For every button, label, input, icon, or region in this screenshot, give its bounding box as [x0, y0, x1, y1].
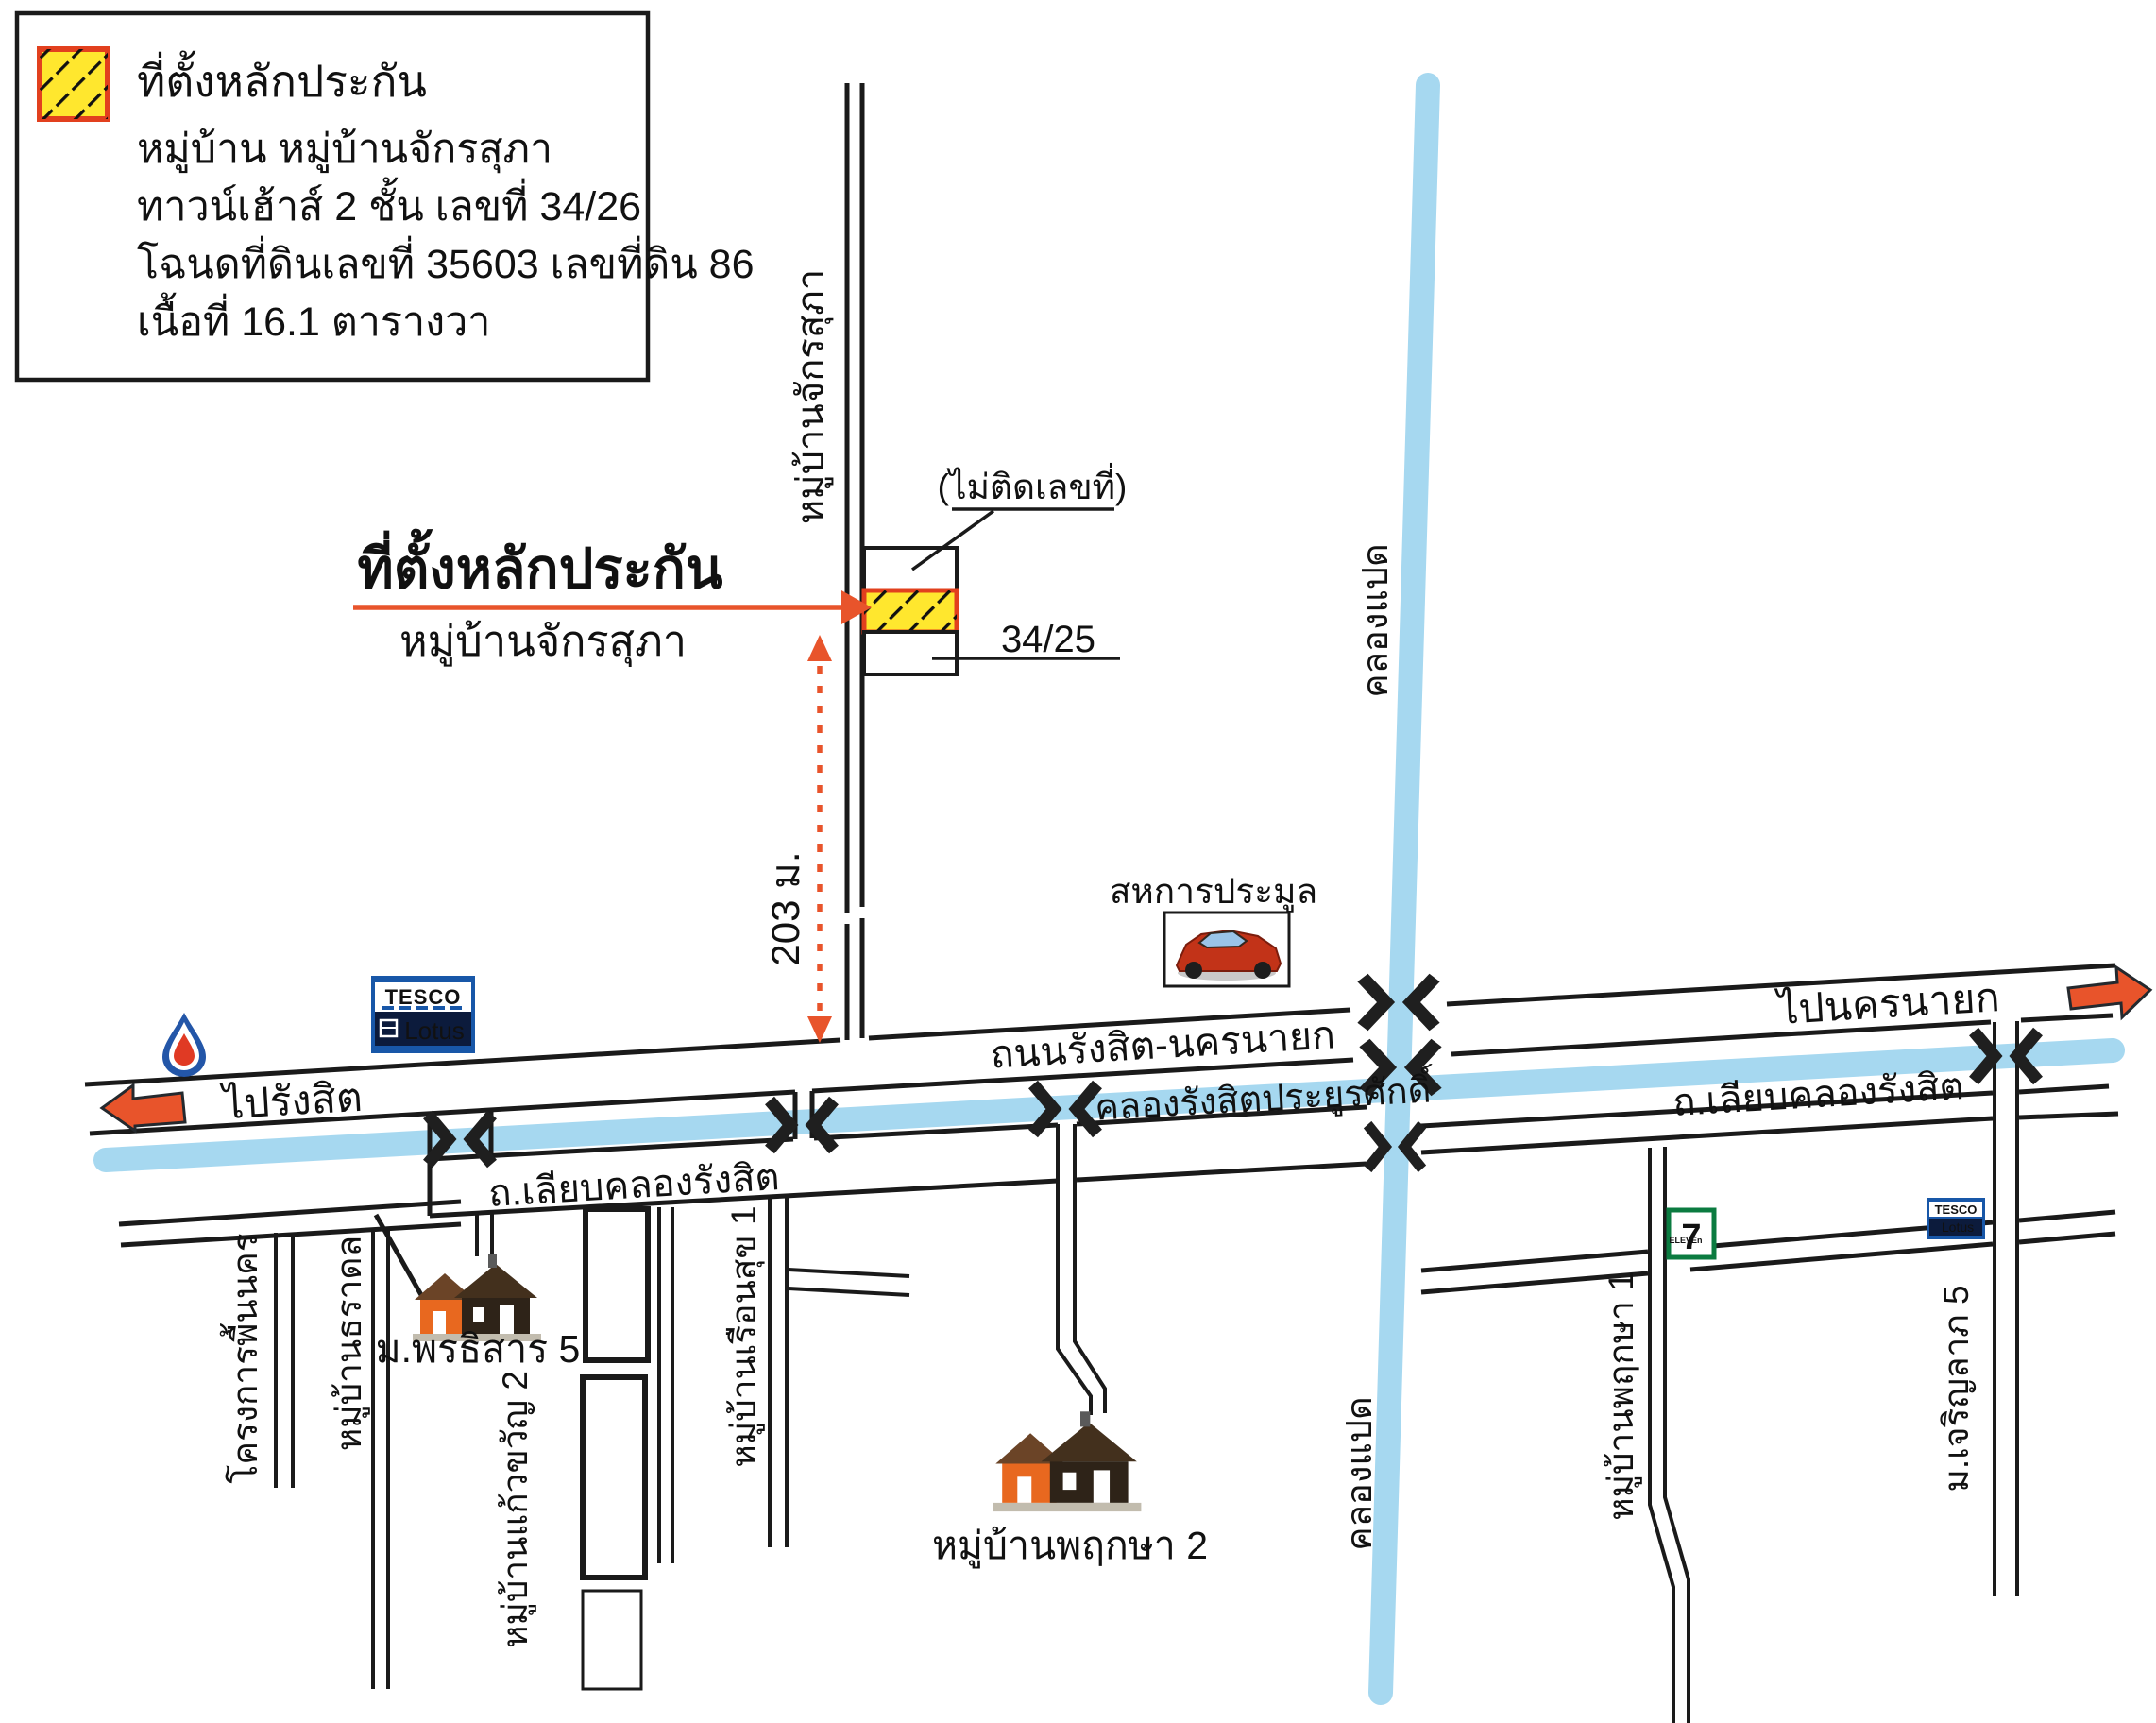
callout-title: ที่ตั้งหลักประกัน	[358, 529, 723, 600]
charoenlap-label: ม.เจริญลาภ 5	[1937, 1285, 1977, 1492]
distance-label: 203 ม.	[763, 851, 807, 965]
lotus-word-large: Lotus	[404, 1016, 465, 1045]
legend-box: ที่ตั้งหลักประกัน หมู่บ้าน หมู่บ้านจักรส…	[17, 13, 755, 380]
auction-label: สหการประมูล	[1110, 872, 1317, 913]
kaewkwan-label: หมู่บ้านแก้วขวัญ 2	[496, 1371, 536, 1648]
seven-eleven-logo: 7 ELEVEn	[1669, 1210, 1714, 1257]
legend-village: หมู่บ้าน หมู่บ้านจักรสุภา	[137, 127, 552, 174]
tesco-word-small: TESCO	[1935, 1203, 1978, 1217]
distance-measure: 203 ม.	[763, 635, 832, 1043]
legend-swatch-hatch	[40, 49, 108, 119]
pruksa2-label: หมู่บ้านพฤกษา 2	[932, 1524, 1208, 1569]
neighbor-number-label: 34/25	[1001, 619, 1095, 660]
pruksa1-label: หมู่บ้านพฤกษา 1	[1602, 1271, 1642, 1521]
ruansuk-label: หมู่บ้านเรือนสุข 1	[724, 1205, 765, 1467]
tharadol-label: หมู่บ้านธราดล	[330, 1236, 370, 1451]
legend-area: เนื้อที่ 16.1 ตารางวา	[137, 292, 490, 345]
khlong-paet-label-south: คลองแปด	[1340, 1396, 1380, 1550]
auction-car: สหการประมูล	[1110, 872, 1317, 986]
measure-arrow-up	[807, 635, 832, 661]
phuennakorn-label: โครงการพื้นนคร	[219, 1233, 264, 1483]
plot-34-25	[864, 632, 957, 674]
to-rangsit-label: ไปรังสิต	[219, 1074, 364, 1129]
tesco-lotus-logo-small: TESCO Lotus	[1927, 1198, 1985, 1239]
khlong-paet-label-north: คลองแปด	[1356, 543, 1396, 697]
east-lower-road	[1421, 1212, 2115, 1292]
plot-collateral-hatch	[864, 590, 957, 632]
map-canvas: (ไม่ติดเลขที่) 34/25 ที่ตั้งหลักประกัน ห…	[0, 0, 2156, 1723]
pruksa2-house-icon	[993, 1411, 1141, 1511]
canal-khlong-paet	[1381, 85, 1428, 1693]
ptt-logo	[162, 1013, 206, 1077]
seven-word: ELEVEn	[1669, 1236, 1702, 1245]
lotus-word-small: Lotus	[1942, 1220, 1974, 1235]
no-number-label: (ไม่ติดเลขที่)	[938, 462, 1128, 506]
collateral-callout: ที่ตั้งหลักประกัน หมู่บ้านจักรสุภา	[353, 529, 872, 667]
collateral-plot-group: (ไม่ติดเลขที่) 34/25	[864, 462, 1127, 674]
tesco-lotus-logo-large: TESCO Lotus	[371, 976, 475, 1053]
callout-village: หมู่บ้านจักรสุภา	[399, 617, 687, 667]
tesco-word-large: TESCO	[385, 985, 462, 1009]
pornthisan-label: ม.พรธิสาร 5	[376, 1327, 581, 1371]
legend-title: ที่ตั้งหลักประกัน	[137, 50, 427, 106]
legend-deed: โฉนดที่ดินเลขที่ 35603 เลขที่ดิน 86	[137, 236, 755, 287]
collateral-location-map: (ไม่ติดเลขที่) 34/25 ที่ตั้งหลักประกัน ห…	[0, 0, 2156, 1723]
plot-no-number	[864, 548, 957, 590]
soi-chaksupa-label: หมู่บ้านจักรสุภา	[790, 269, 834, 524]
legend-house-type: ทาวน์เฮ้าส์ 2 ชั้น เลขที่ 34/26	[137, 177, 641, 230]
